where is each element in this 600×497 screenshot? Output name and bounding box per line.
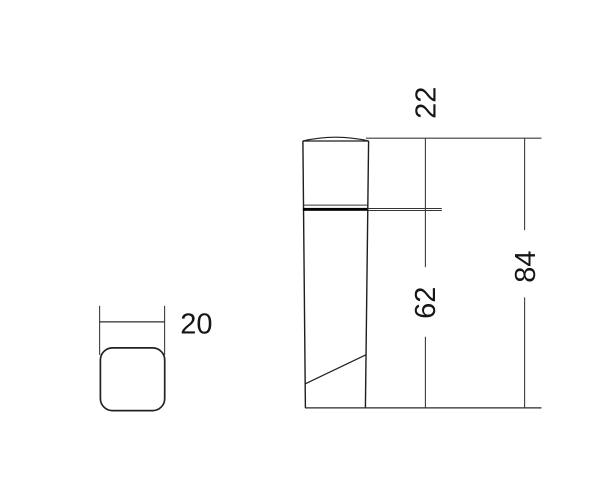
svg-text:84: 84: [510, 250, 542, 282]
svg-text:22: 22: [411, 87, 443, 119]
svg-text:20: 20: [180, 309, 212, 341]
svg-text:62: 62: [410, 287, 442, 319]
